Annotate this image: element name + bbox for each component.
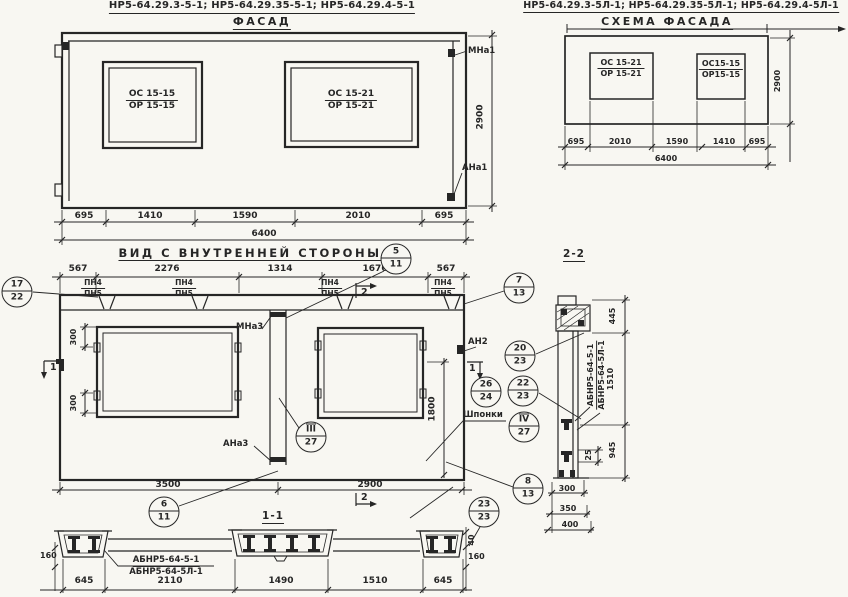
dim-text: 1590 bbox=[666, 138, 688, 146]
section-marker-1-left: 1 bbox=[50, 363, 57, 373]
section-2-2-panel-codes: АБНР5-64-5-1 АБНР5-64-5Л-1 bbox=[587, 340, 607, 409]
callout-26-24: 2624 bbox=[471, 377, 502, 408]
dim-text: 645 bbox=[434, 577, 453, 586]
callout-iii-27: III27 bbox=[296, 422, 327, 453]
joint-label: ПН4ПН5 bbox=[318, 279, 342, 298]
dim-945: 945 bbox=[609, 442, 617, 459]
dim-text: 1314 bbox=[267, 265, 292, 274]
dim-300-stack: 300 bbox=[559, 485, 576, 493]
dim-text: 2010 bbox=[609, 138, 631, 146]
dim-text: 1510 bbox=[362, 577, 387, 586]
inner-view-title: ВИД С ВНУТРЕННЕЙ СТОРОНЫ bbox=[118, 247, 381, 261]
schema-panel-codes: НР5-64.29.3-5Л-1; НР5-64.29.35-5Л-1; НР5… bbox=[523, 1, 839, 13]
section-1-1-title: 1-1 bbox=[262, 511, 284, 524]
anchor-label-mna3: МНа3 bbox=[236, 323, 263, 332]
dim-25: 25 bbox=[585, 449, 593, 460]
dim-300-lower: 300 bbox=[70, 395, 78, 412]
facade-height-dim: 2900 bbox=[476, 104, 485, 129]
dim-text: 1410 bbox=[713, 138, 735, 146]
dim-text: 645 bbox=[75, 577, 94, 586]
section-marker-2-bottom: 2 bbox=[361, 493, 368, 503]
callout-20-23: 2023 bbox=[505, 341, 536, 372]
joint-label: ПН4ПН5 bbox=[81, 279, 105, 298]
dim-300-upper: 300 bbox=[70, 329, 78, 346]
dim-text: 2110 bbox=[157, 577, 182, 586]
facade-window-right-label: ОС 15-21 ОР 15-21 bbox=[325, 90, 377, 112]
dim-400-stack: 400 bbox=[562, 521, 579, 529]
section-marker-1-right: 1 bbox=[469, 364, 476, 374]
anchor-label-ana3: АНа3 bbox=[223, 440, 248, 449]
facade-panel-codes: НР5-64.29.3-5-1; НР5-64.29.35-5-1; НР5-6… bbox=[109, 1, 415, 14]
dim-445: 445 bbox=[609, 308, 617, 325]
engineering-drawing-sheet: НР5-64.29.3-5-1; НР5-64.29.35-5-1; НР5-6… bbox=[0, 0, 848, 597]
dim-350-stack: 350 bbox=[560, 505, 577, 513]
dim-text: 695 bbox=[568, 138, 585, 146]
dim-text: 695 bbox=[75, 212, 94, 221]
schema-height-dim: 2900 bbox=[774, 70, 782, 92]
dim-text: 2276 bbox=[154, 265, 179, 274]
anchor-label-mna1: МНа1 bbox=[468, 47, 495, 56]
callout-22-23: 2223 bbox=[508, 376, 539, 407]
joint-label: ПН4ПН5 bbox=[172, 279, 196, 298]
dim-text: 567 bbox=[69, 265, 88, 274]
section-marker-2-top: 2 bbox=[361, 288, 368, 298]
dim-160-left: 160 bbox=[40, 552, 57, 560]
dim-text: 1410 bbox=[137, 212, 162, 221]
anchor-label-an2: АН2 bbox=[468, 338, 488, 347]
dim-text: 567 bbox=[437, 265, 456, 274]
dim-40: 40 bbox=[468, 534, 476, 545]
schema-window-left-label: ОС 15-21 ОР 15-21 bbox=[597, 59, 644, 79]
dim-text: 1490 bbox=[268, 577, 293, 586]
dim-text: 2900 bbox=[357, 481, 382, 490]
callout-23-23: 2323 bbox=[469, 497, 500, 528]
dim-text: 3500 bbox=[155, 481, 180, 490]
facade-title: ФАСАД bbox=[233, 16, 291, 30]
callout-5-11: 511 bbox=[381, 244, 412, 275]
dim-text: 2010 bbox=[345, 212, 370, 221]
dim-1510: 1510 bbox=[607, 368, 615, 390]
section-2-2-title: 2-2 bbox=[563, 249, 585, 262]
facade-window-left-label: ОС 15-15 ОР 15-15 bbox=[126, 90, 178, 112]
dim-160-right: 160 bbox=[468, 553, 485, 561]
callout-6-11: 611 bbox=[149, 497, 180, 528]
dim-total-text: 6400 bbox=[251, 230, 276, 239]
dim-total-text: 6400 bbox=[655, 155, 677, 163]
callout-17-22: 1722 bbox=[2, 277, 33, 308]
schema-title: СХЕМА ФАСАДА bbox=[601, 16, 733, 30]
callout-iv-27: IV27 bbox=[509, 412, 540, 443]
dim-text: 1590 bbox=[232, 212, 257, 221]
callout-8-13: 813 bbox=[513, 474, 544, 505]
anchor-label-ana1: АНа1 bbox=[462, 164, 487, 173]
keys-label: Шпонки bbox=[463, 411, 503, 420]
section-1-1-panel-code-1: АБНР5-64-5-1 bbox=[133, 556, 200, 567]
schema-window-right-label: ОС15-15 ОР15-15 bbox=[699, 60, 743, 80]
dim-text: 695 bbox=[435, 212, 454, 221]
dim-1800: 1800 bbox=[428, 396, 437, 421]
dim-text: 695 bbox=[749, 138, 766, 146]
callout-7-13: 713 bbox=[504, 273, 535, 304]
joint-label: ПН4ПН5 bbox=[431, 279, 455, 298]
